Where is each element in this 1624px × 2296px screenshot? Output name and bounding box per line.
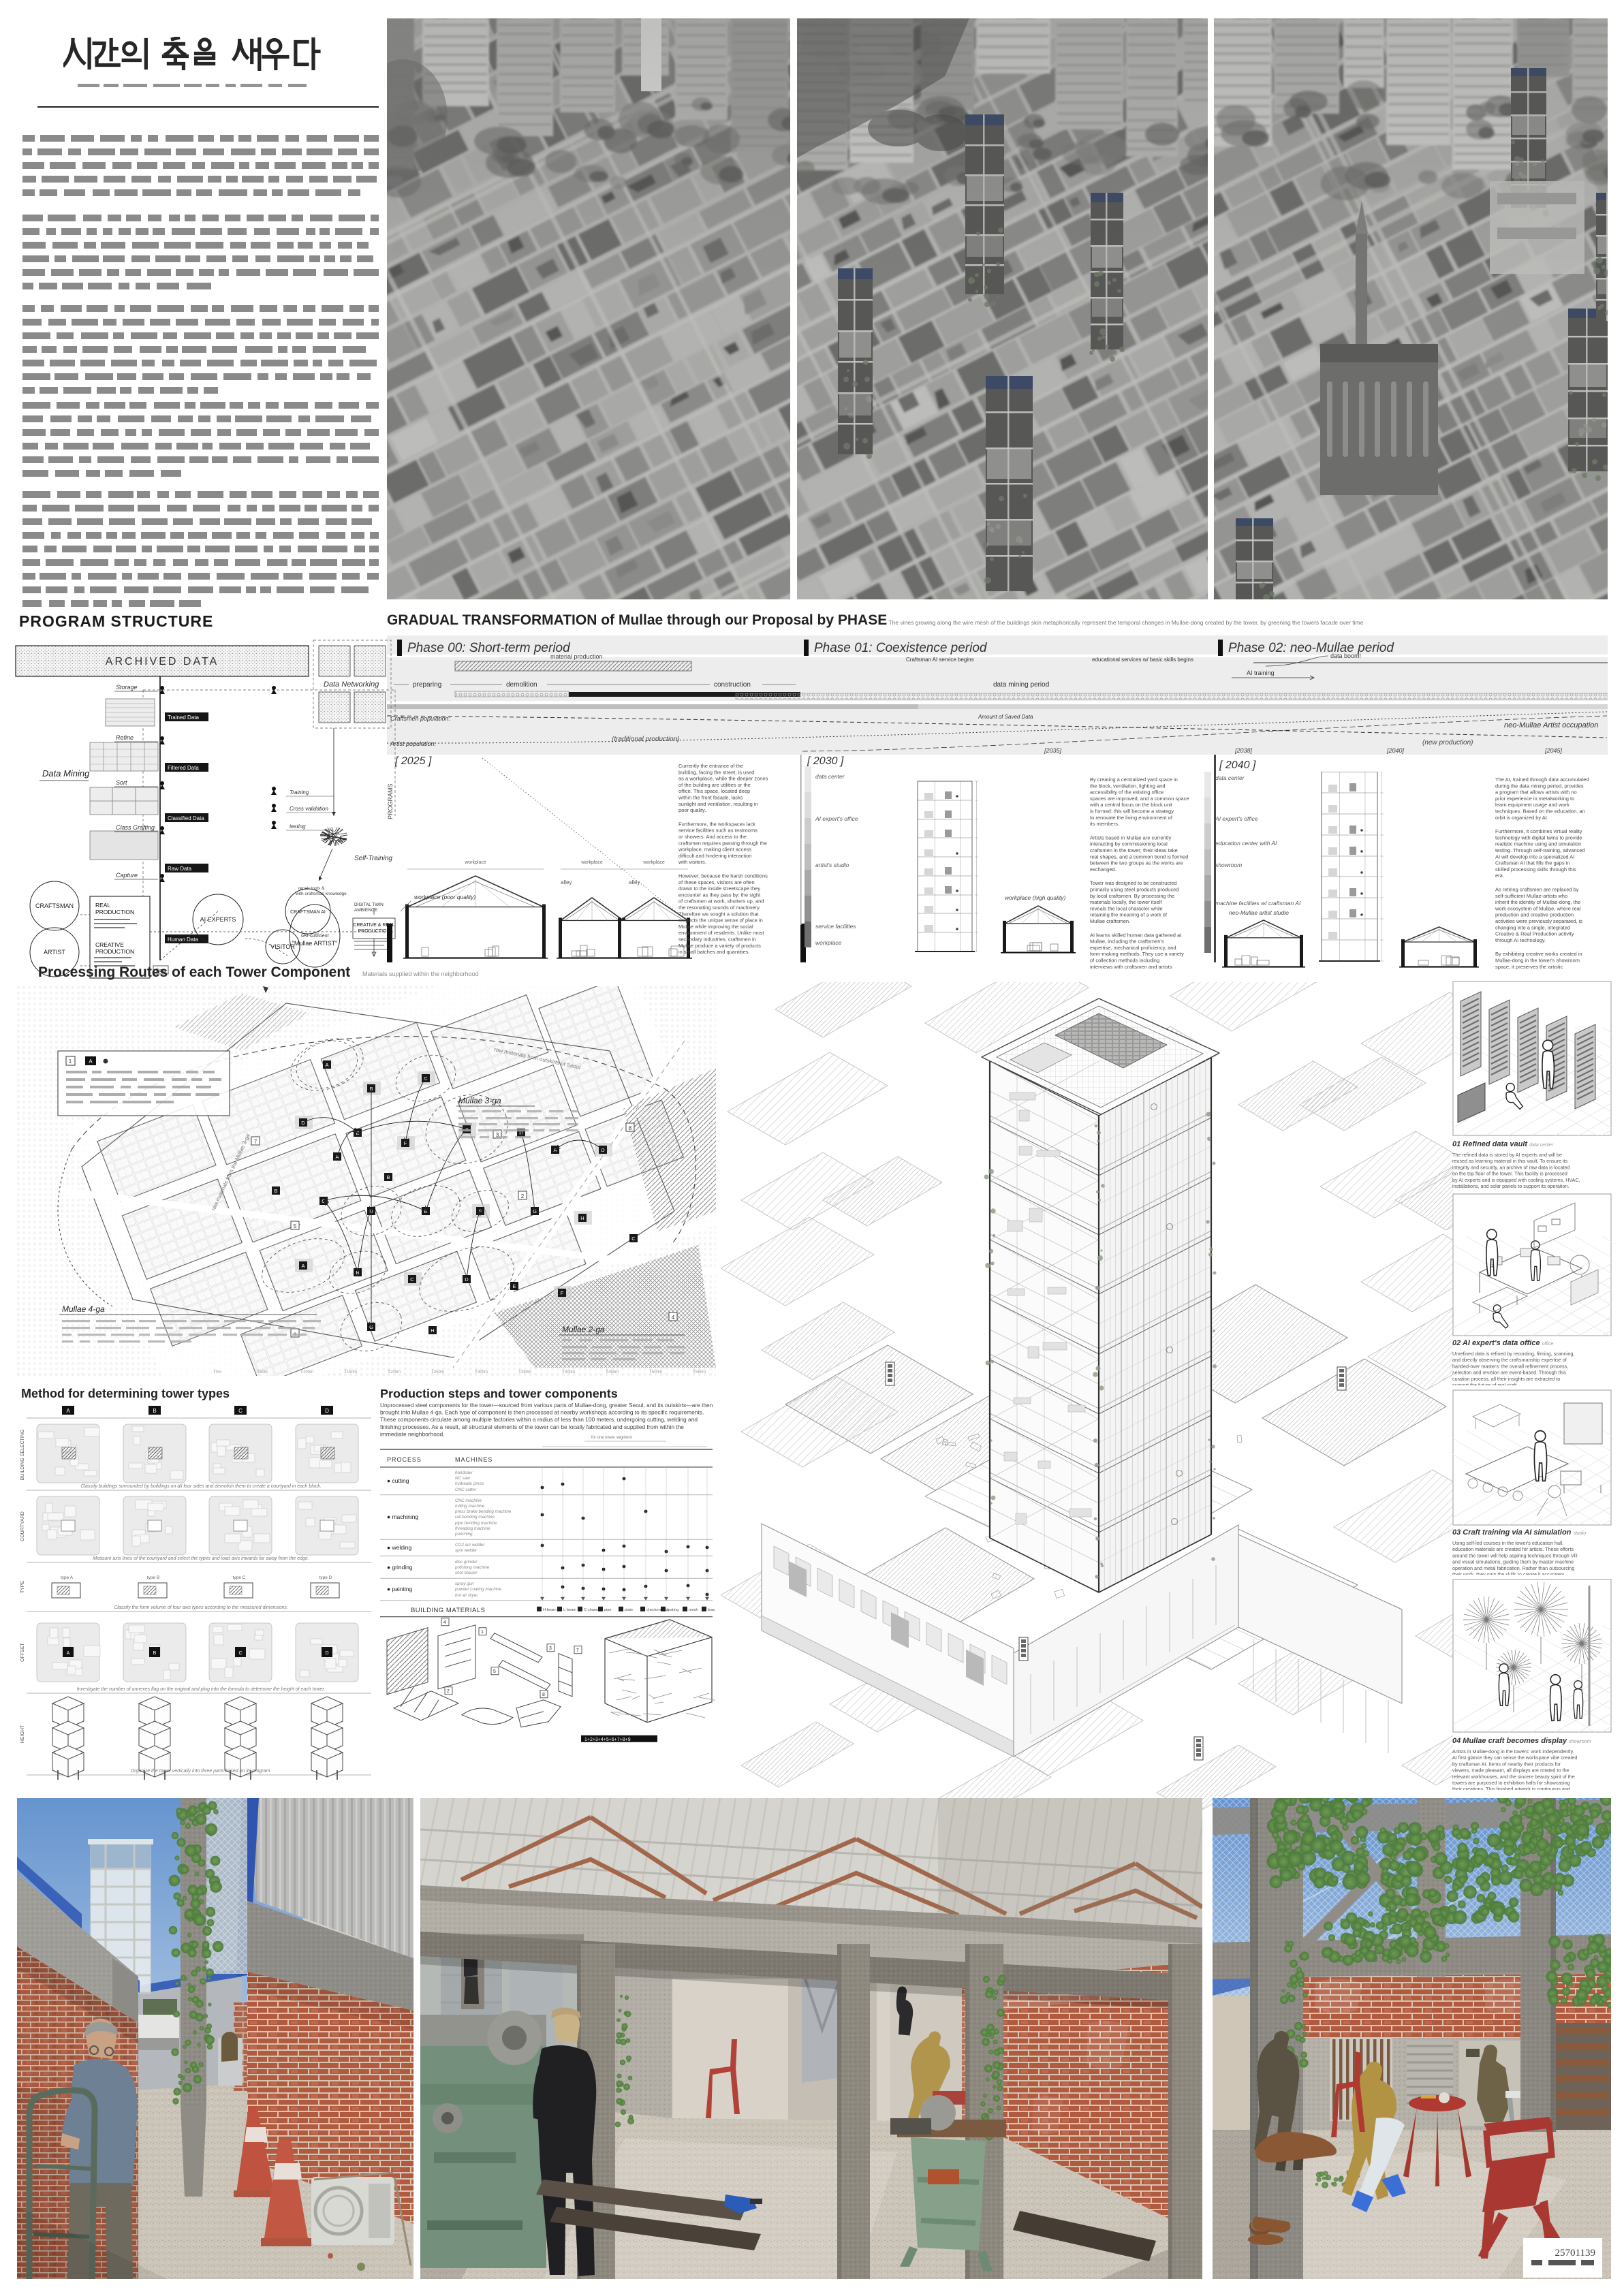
svg-text:CRAFTSMAN: CRAFTSMAN — [35, 902, 74, 909]
svg-text:350m: 350m — [521, 1370, 531, 1374]
svg-text:However, because the harsh con: However, because the harsh conditionsof … — [678, 873, 768, 956]
svg-text:spot welder: spot welder — [455, 1548, 478, 1553]
svg-text:PROGRAMS: PROGRAMS — [387, 783, 394, 819]
svg-text:7: 7 — [254, 1139, 257, 1145]
svg-text:bracket: bracket — [708, 1608, 715, 1612]
svg-text:rail bending machine: rail bending machine — [455, 1515, 495, 1520]
svg-text:machine facilities w/ craftsma: machine facilities w/ craftsman AI — [1215, 900, 1301, 907]
svg-text:Investigate the number of anne: Investigate the number of annexes flag o… — [77, 1687, 326, 1692]
svg-text:neo-Mullae artist studio: neo-Mullae artist studio — [1229, 909, 1289, 916]
svg-text:alley: alley — [561, 879, 572, 885]
svg-text:Sort: Sort — [116, 779, 127, 786]
svg-text:with craftsman knowledge: with craftsman knowledge — [295, 892, 347, 896]
svg-text:HEIGHT: HEIGHT — [20, 1725, 25, 1743]
svg-text:Raw Data: Raw Data — [168, 866, 192, 872]
svg-text:(new production): (new production) — [1422, 739, 1473, 746]
svg-text:7: 7 — [576, 1648, 579, 1653]
svg-text:threading machine: threading machine — [455, 1526, 490, 1531]
svg-text:alley: alley — [629, 879, 640, 885]
svg-text:● cutting: ● cutting — [387, 1477, 409, 1484]
svg-text:plate: plate — [625, 1608, 633, 1612]
svg-text:grating: grating — [667, 1608, 678, 1612]
svg-text:CREATIVE: CREATIVE — [95, 941, 124, 948]
svg-text:NC saw: NC saw — [455, 1476, 470, 1481]
svg-text:Unprocessed steel components f: Unprocessed steel components for the tow… — [380, 1402, 713, 1437]
svg-text:● painting: ● painting — [387, 1586, 412, 1592]
svg-text:Phase 01: Coexistence period: Phase 01: Coexistence period — [814, 641, 988, 655]
svg-text:shot blaster: shot blaster — [455, 1571, 478, 1575]
svg-text:Furthermore, it combines virtu: Furthermore, it combines virtual reality… — [1495, 828, 1585, 879]
svg-text:workplace: workplace — [642, 860, 665, 865]
svg-text:[ 2025 ]: [ 2025 ] — [394, 755, 432, 767]
svg-text:Artists in Mullae-dong in the: Artists in Mullae-dong in the towers' wo… — [1452, 1748, 1577, 1790]
svg-text:1+2+3+4+5+6+7+8+9: 1+2+3+4+5+6+7+8+9 — [584, 1737, 631, 1742]
svg-text:100m: 100m — [303, 1370, 313, 1374]
svg-text:Refine: Refine — [116, 734, 134, 741]
svg-text:Human Data: Human Data — [168, 937, 198, 943]
svg-text:milling machine: milling machine — [455, 1504, 485, 1509]
svg-text:data mining period: data mining period — [993, 681, 1049, 689]
svg-text:C: C — [410, 1276, 414, 1283]
svg-text:Training: Training — [290, 789, 309, 796]
svg-text:AI expert's office: AI expert's office — [815, 815, 858, 822]
svg-text:Class Grafting: Class Grafting — [116, 824, 155, 831]
svg-text:punching: punching — [454, 1532, 473, 1537]
svg-text:pipe: pipe — [604, 1608, 612, 1612]
svg-text:D: D — [301, 1120, 305, 1126]
svg-text:self-sufficient: self-sufficient — [301, 934, 330, 939]
svg-text:DIGITAL TWIN: DIGITAL TWIN — [354, 902, 384, 907]
svg-text:REAL: REAL — [95, 902, 110, 909]
svg-text:workplace: workplace — [815, 939, 842, 946]
svg-text:3: 3 — [549, 1646, 552, 1651]
svg-text:4: 4 — [672, 1315, 675, 1321]
svg-text:2: 2 — [447, 1689, 450, 1694]
svg-text:1: 1 — [481, 1630, 484, 1635]
svg-text:PRODUCTION: PRODUCTION — [95, 909, 134, 915]
svg-text:A: A — [301, 1263, 304, 1269]
svg-text:type B: type B — [147, 1575, 159, 1580]
svg-text:VISITOR: VISITOR — [270, 943, 295, 950]
svg-text:D: D — [601, 1147, 605, 1153]
svg-text:mesh: mesh — [689, 1608, 698, 1612]
svg-text:A: A — [325, 1062, 328, 1068]
svg-text:construction: construction — [714, 681, 751, 689]
svg-text:Mullae 4-ga: Mullae 4-ga — [62, 1304, 105, 1314]
svg-text:H: H — [580, 1215, 584, 1221]
svg-text:[ 2040 ]: [ 2040 ] — [1219, 759, 1256, 771]
svg-text:Unrefined data is refined by r: Unrefined data is refined by recording, … — [1452, 1351, 1574, 1385]
svg-text:Trained Data: Trained Data — [168, 714, 200, 721]
svg-text:workplace (poor quality): workplace (poor quality) — [414, 894, 475, 900]
svg-text:A: A — [66, 1408, 70, 1414]
svg-text:B: B — [274, 1188, 277, 1194]
svg-text:By exhibiting creative works c: By exhibiting creative works created inM… — [1495, 951, 1582, 971]
svg-text:data boom!: data boom! — [1330, 652, 1361, 659]
svg-text:● welding: ● welding — [387, 1544, 412, 1551]
svg-text:Artists based in Mullae are cu: Artists based in Mullae are currentlyint… — [1090, 834, 1188, 872]
svg-text:CO2 arc welder: CO2 arc welder — [455, 1543, 486, 1547]
svg-text:Measure axis lines of the cour: Measure axis lines of the courtyard and … — [93, 1556, 309, 1561]
svg-text:Production steps and tower com: Production steps and tower components — [380, 1387, 618, 1400]
svg-text:OFFSET: OFFSET — [20, 1642, 25, 1661]
svg-text:spray gun: spray gun — [455, 1582, 474, 1586]
svg-text:service facilities: service facilities — [815, 923, 856, 930]
svg-text:AMBIENCE: AMBIENCE — [354, 908, 378, 913]
svg-text:Classify the form volume of fo: Classify the form volume of four axis ty… — [114, 1605, 288, 1610]
svg-text:50m: 50m — [260, 1370, 268, 1374]
svg-text:type A: type A — [61, 1575, 74, 1580]
svg-text:Mullae 2-ga: Mullae 2-ga — [562, 1325, 605, 1334]
svg-text:Filtered Data: Filtered Data — [168, 765, 199, 771]
svg-text:CNC machine: CNC machine — [455, 1498, 482, 1503]
svg-text:450m: 450m — [608, 1370, 619, 1374]
svg-text:handsaw: handsaw — [455, 1471, 473, 1475]
svg-text:hydraulic press: hydraulic press — [455, 1481, 484, 1486]
svg-text:PRODUCTION: PRODUCTION — [95, 948, 134, 955]
svg-text:(traditional production): (traditional production) — [612, 736, 680, 743]
svg-text:checkered pl.: checkered pl. — [646, 1608, 670, 1612]
svg-text:25701139: 25701139 — [1555, 2248, 1595, 2259]
svg-text:By creating a centralized yard: By creating a centralized yard space int… — [1090, 776, 1189, 827]
svg-text:200m: 200m — [390, 1370, 401, 1374]
svg-text:C: C — [238, 1651, 242, 1656]
svg-text:BUILDING SELECTING: BUILDING SELECTING — [20, 1430, 25, 1481]
svg-text:250m: 250m — [434, 1370, 444, 1374]
svg-text:● grinding: ● grinding — [387, 1564, 413, 1571]
svg-text:powder coating machine: powder coating machine — [454, 1587, 502, 1592]
svg-text:1: 1 — [69, 1058, 72, 1065]
svg-text:D: D — [325, 1651, 328, 1656]
svg-text:300m: 300m — [478, 1370, 488, 1374]
svg-text:8: 8 — [542, 1693, 545, 1697]
svg-text:CNC cutter: CNC cutter — [455, 1488, 477, 1492]
svg-text:BUILDING MATERIALS: BUILDING MATERIALS — [411, 1607, 485, 1614]
svg-text:Data Mining: Data Mining — [42, 768, 90, 779]
svg-text:H-beam: H-beam — [543, 1608, 557, 1612]
svg-text:PROGRAM STRUCTURE: PROGRAM STRUCTURE — [19, 612, 213, 630]
svg-text:artist's studio: artist's studio — [815, 862, 849, 868]
svg-text:type D: type D — [319, 1575, 332, 1580]
svg-text:workplace: workplace — [464, 860, 486, 865]
svg-text:ARCHIVED DATA: ARCHIVED DATA — [106, 656, 219, 667]
svg-text:AI EXPERTS: AI EXPERTS — [200, 916, 236, 923]
svg-text:data center: data center — [1215, 774, 1245, 781]
svg-text:Mullae 3-ga: Mullae 3-ga — [458, 1096, 501, 1105]
svg-text:4: 4 — [443, 1620, 446, 1625]
svg-text:Using self-led courses in the: Using self-led courses in the tower's ed… — [1452, 1540, 1578, 1575]
svg-text:polishing machine: polishing machine — [454, 1565, 490, 1570]
svg-text:AI learns skilled human data g: AI learns skilled human data gathered at… — [1090, 932, 1184, 971]
svg-text:150m: 150m — [347, 1370, 357, 1374]
svg-text:Method for determining tower t: Method for determining tower types — [21, 1387, 230, 1400]
svg-text:The refined data is stored by: The refined data is stored by AI experts… — [1452, 1152, 1580, 1189]
svg-text:[2035]: [2035] — [1044, 747, 1062, 754]
svg-text:pipe bending machine: pipe bending machine — [454, 1521, 497, 1526]
svg-text:L-beam: L-beam — [563, 1608, 576, 1612]
svg-text:type C: type C — [233, 1575, 246, 1580]
svg-text:Cross validation: Cross validation — [290, 806, 328, 812]
svg-text:[2040]: [2040] — [1386, 747, 1405, 754]
svg-text:Processing Routes of each Towe: Processing Routes of each Tower Componen… — [38, 964, 350, 980]
svg-text:F: F — [561, 1290, 564, 1296]
svg-text:Classify buildings surrounded: Classify buildings surrounded by buildin… — [80, 1484, 321, 1489]
svg-text:550m: 550m — [696, 1370, 706, 1374]
svg-text:PRODUCTION: PRODUCTION — [358, 929, 390, 934]
svg-text:C: C — [424, 1075, 428, 1082]
svg-text:2: 2 — [521, 1193, 525, 1199]
svg-text:Storage: Storage — [116, 684, 138, 691]
svg-text:demolition: demolition — [506, 681, 537, 689]
svg-text:Classified Data: Classified Data — [168, 815, 204, 821]
svg-text:5: 5 — [493, 1669, 496, 1674]
svg-text:A: A — [335, 1154, 339, 1160]
svg-text:B: B — [153, 1651, 157, 1656]
svg-text:[2045]: [2045] — [1544, 747, 1563, 754]
svg-text:material production: material production — [550, 653, 603, 660]
svg-text:Currently the entrance of theb: Currently the entrance of thebuilding, f… — [678, 763, 768, 813]
svg-text:C: C — [238, 1408, 243, 1414]
svg-text:AI training: AI training — [1247, 670, 1275, 676]
svg-text:B: B — [386, 1174, 390, 1180]
svg-text:Data Networking: Data Networking — [324, 680, 379, 689]
svg-text:E: E — [512, 1283, 516, 1289]
svg-text:workplace (high quality): workplace (high quality) — [1005, 894, 1065, 901]
svg-text:neo-Mullae Artist occupation: neo-Mullae Artist occupation — [1504, 721, 1598, 729]
svg-text:Organize the tower vertically: Organize the tower vertically into three… — [131, 1769, 272, 1774]
svg-text:Amount of Saved Data: Amount of Saved Data — [978, 714, 1033, 720]
svg-text:ARTIST: ARTIST — [44, 949, 65, 956]
svg-text:data center: data center — [815, 773, 845, 780]
svg-text:H: H — [431, 1327, 434, 1334]
svg-text:Tower was designed to be const: Tower was designed to be constructedprim… — [1090, 880, 1178, 924]
svg-text:showroom: showroom — [1215, 862, 1242, 868]
svg-text:preparing: preparing — [413, 681, 441, 689]
svg-text:workplace: workplace — [580, 860, 603, 865]
svg-text:● machining: ● machining — [387, 1513, 418, 1520]
svg-text:TYPE: TYPE — [20, 1581, 25, 1594]
svg-text:Craftsman AI service begins: Craftsman AI service begins — [906, 657, 974, 663]
svg-text:COURTYARD: COURTYARD — [20, 1511, 25, 1541]
svg-text:Capture: Capture — [116, 872, 138, 879]
svg-text:Furthermore, the workspaces la: Furthermore, the workspaces lackservice … — [678, 821, 767, 865]
svg-text:D: D — [325, 1408, 329, 1414]
svg-text:Artist population:: Artist population: — [390, 740, 437, 747]
svg-text:repair tools &: repair tools & — [298, 886, 325, 891]
svg-text:[2038]: [2038] — [1234, 747, 1253, 754]
svg-text:B: B — [153, 1408, 156, 1414]
svg-text:[ 2030 ]: [ 2030 ] — [807, 755, 844, 767]
svg-text:education center with AI: education center with AI — [1215, 840, 1277, 847]
svg-text:As retiring craftsmen are repl: As retiring craftsmen are replaced bysel… — [1495, 887, 1582, 943]
svg-text:press brake bending machine: press brake bending machine — [454, 1509, 512, 1514]
svg-text:C: C — [631, 1236, 636, 1242]
svg-text:8: 8 — [629, 1125, 632, 1131]
svg-text:0m: 0m — [216, 1370, 221, 1374]
svg-text:500m: 500m — [652, 1370, 662, 1374]
svg-text:A: A — [89, 1058, 93, 1065]
svg-text:disc grinder: disc grinder — [455, 1560, 478, 1564]
svg-text:A: A — [67, 1651, 70, 1656]
svg-text:5: 5 — [294, 1223, 297, 1229]
svg-text:PROCESS: PROCESS — [387, 1456, 422, 1463]
svg-text:for one tower segment: for one tower segment — [591, 1436, 632, 1440]
svg-text:MACHINES: MACHINES — [455, 1456, 493, 1463]
svg-text:educational services w/ basic: educational services w/ basic skills beg… — [1092, 657, 1193, 663]
svg-text:AI expert's office: AI expert's office — [1215, 815, 1258, 822]
svg-text:CRAFTSMAN AI: CRAFTSMAN AI — [290, 910, 326, 915]
svg-text:testing: testing — [290, 823, 306, 830]
svg-text:hot air dryer: hot air dryer — [455, 1593, 478, 1598]
svg-text:Phase 02: neo-Mullae period: Phase 02: neo-Mullae period — [1228, 641, 1394, 655]
svg-text:The AI, trained through data a: The AI, trained through data accumulated… — [1495, 776, 1589, 821]
svg-text:400m: 400m — [565, 1370, 575, 1374]
svg-text:Materials supplied within the: Materials supplied within the neighborho… — [362, 971, 479, 977]
svg-text:Phase 00: Short-term period: Phase 00: Short-term period — [407, 641, 571, 655]
